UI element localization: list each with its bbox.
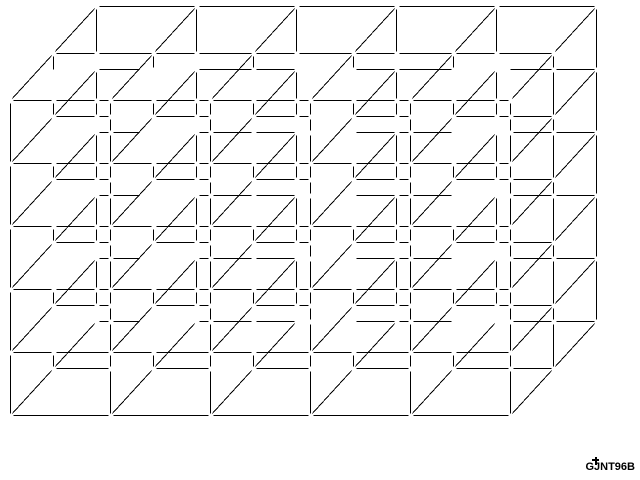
figure-mark-icon: [592, 457, 599, 465]
wireframe-lattice-drawing: [0, 0, 640, 480]
screenshot-canvas: GJNT96B: [0, 0, 640, 480]
watermark: GJNT96B: [585, 462, 635, 473]
